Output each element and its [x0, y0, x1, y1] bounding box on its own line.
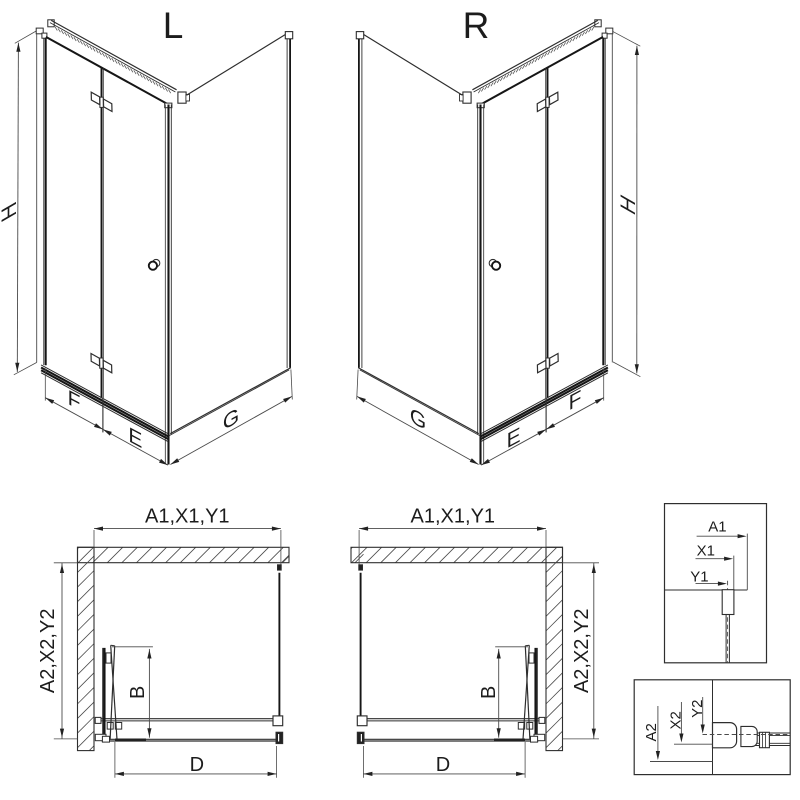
svg-text:A1,X1,Y1: A1,X1,Y1	[145, 505, 230, 527]
svg-text:L: L	[163, 5, 184, 46]
svg-text:A2,X2,Y2: A2,X2,Y2	[571, 609, 593, 694]
svg-text:B: B	[478, 686, 500, 699]
svg-text:A1,X1,Y1: A1,X1,Y1	[411, 505, 496, 527]
svg-text:Y2: Y2	[689, 700, 706, 718]
svg-text:Y1: Y1	[690, 568, 708, 585]
svg-text:A1: A1	[708, 519, 726, 536]
svg-text:A2,X2,Y2: A2,X2,Y2	[37, 609, 59, 694]
svg-text:R: R	[463, 5, 490, 46]
svg-text:X1: X1	[697, 542, 715, 559]
svg-text:D: D	[436, 754, 450, 776]
svg-text:X2: X2	[668, 711, 685, 729]
svg-text:B: B	[127, 686, 149, 699]
svg-text:D: D	[190, 754, 204, 776]
